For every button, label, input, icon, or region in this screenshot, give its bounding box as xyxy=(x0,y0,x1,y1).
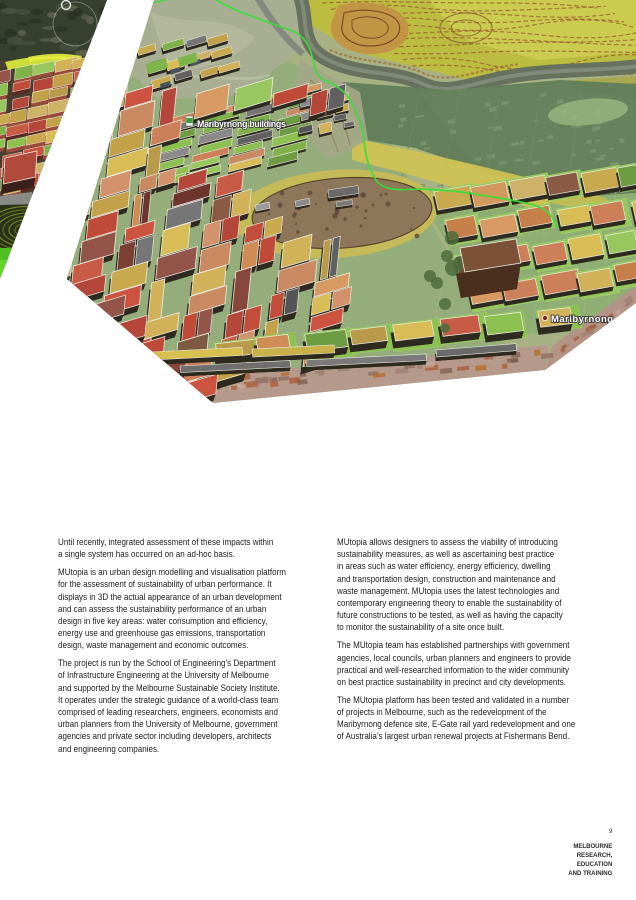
svg-text:Maribyrnong: Maribyrnong xyxy=(551,314,613,325)
svg-text:Maribyrnong buildings: Maribyrnong buildings xyxy=(197,119,286,129)
